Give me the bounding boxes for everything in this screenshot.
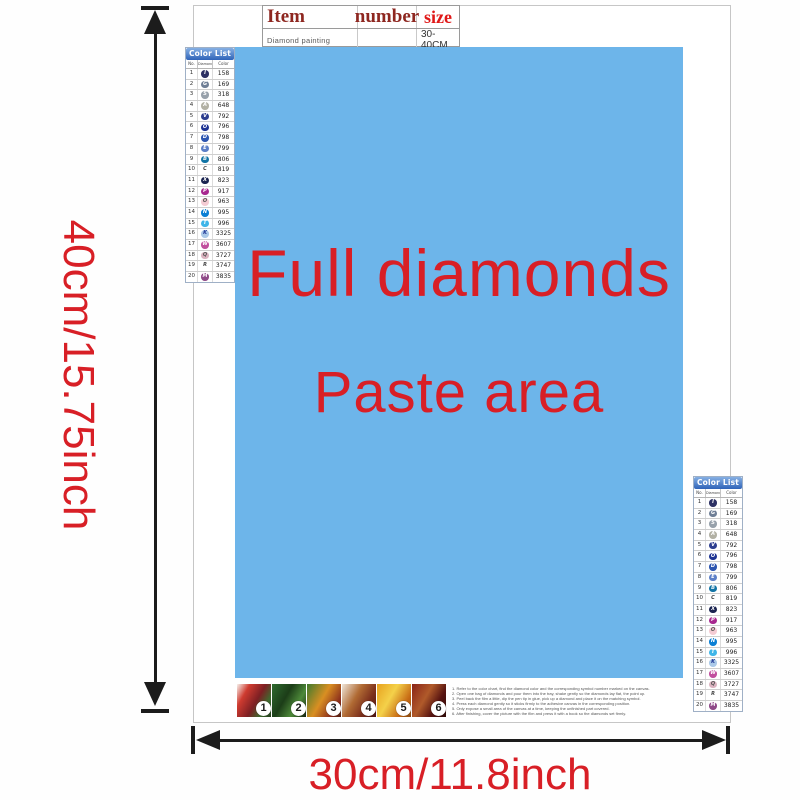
- dmc-color-code: 648: [213, 101, 234, 111]
- row-number: 8: [694, 573, 706, 583]
- diamond-symbol-icon: P: [198, 187, 213, 197]
- diamond-symbol-icon: R: [198, 261, 213, 271]
- color-list-row: 10 C 819: [694, 594, 742, 605]
- diamond-symbol-icon: K: [198, 229, 213, 239]
- row-number: 14: [186, 208, 198, 218]
- row-number: 13: [694, 626, 706, 636]
- color-list-right: Color List No. Diamond Color 1 I 158 2 G…: [693, 476, 743, 712]
- row-number: 16: [186, 229, 198, 239]
- diamond-symbol-icon: T: [198, 219, 213, 229]
- row-number: 3: [694, 519, 706, 529]
- dmc-color-code: 648: [721, 530, 742, 540]
- diamond-symbol-icon: C: [706, 594, 721, 604]
- color-list-row: 2 G 169: [186, 80, 234, 91]
- arrow-right-cap: [726, 726, 730, 754]
- color-list-columns: No. Diamond Color: [694, 489, 742, 498]
- dmc-color-code: 996: [213, 219, 234, 229]
- row-number: 11: [694, 605, 706, 615]
- diamond-symbol-icon: N: [198, 208, 213, 218]
- color-list-left: Color List No. Diamond Color 1 I 158 2 G…: [185, 47, 235, 283]
- row-number: 2: [186, 80, 198, 90]
- row-number: 15: [186, 219, 198, 229]
- dmc-color-code: 819: [721, 594, 742, 604]
- dmc-color-code: 318: [721, 519, 742, 529]
- color-list-row: 3 S 318: [694, 519, 742, 530]
- dmc-color-code: 796: [213, 122, 234, 132]
- dmc-color-code: 995: [721, 637, 742, 647]
- col-no: No.: [694, 489, 706, 497]
- step-number-badge: 4: [361, 701, 376, 716]
- color-list-row: 5 V 792: [694, 541, 742, 552]
- dmc-color-code: 917: [213, 187, 234, 197]
- dmc-color-code: 799: [721, 573, 742, 583]
- color-list-row: 18 Q 3727: [186, 251, 234, 262]
- dmc-color-code: 796: [721, 551, 742, 561]
- diamond-symbol-icon: G: [706, 509, 721, 519]
- step-number-badge: 6: [431, 701, 446, 716]
- col-no: No.: [186, 60, 198, 68]
- paste-area-subtitle: Paste area: [235, 359, 683, 426]
- dmc-color-code: 158: [213, 69, 234, 79]
- dmc-color-code: 799: [213, 144, 234, 154]
- diamond-symbol-icon: B: [198, 155, 213, 165]
- row-number: 11: [186, 176, 198, 186]
- diamond-symbol-icon: R: [706, 690, 721, 700]
- arrow-down-icon: [144, 682, 166, 706]
- color-list-row: 5 V 792: [186, 112, 234, 123]
- diamond-symbol-icon: W: [198, 240, 213, 250]
- dmc-color-code: 798: [721, 562, 742, 572]
- col-diamond: Diamond: [706, 489, 721, 497]
- row-number: 2: [694, 509, 706, 519]
- color-list-row: 4 A 648: [694, 530, 742, 541]
- color-list-row: 19 R 3747: [186, 261, 234, 272]
- row-number: 20: [186, 272, 198, 282]
- dmc-color-code: 819: [213, 165, 234, 175]
- color-list-row: 8 E 799: [186, 144, 234, 155]
- diamond-symbol-icon: P: [706, 616, 721, 626]
- dmc-color-code: 823: [213, 176, 234, 186]
- color-list-row: 16 K 3325: [186, 229, 234, 240]
- diamond-symbol-icon: W: [706, 669, 721, 679]
- color-list-row: 6 O 796: [694, 551, 742, 562]
- color-list-row: 11 X 823: [694, 605, 742, 616]
- paste-area-title: Full diamonds: [235, 235, 683, 311]
- row-number: 13: [186, 197, 198, 207]
- row-number: 14: [694, 637, 706, 647]
- row-number: 1: [186, 69, 198, 79]
- arrow-left-cap: [191, 726, 195, 754]
- color-list-title: Color List: [186, 48, 234, 60]
- diamond-symbol-icon: I: [198, 69, 213, 79]
- color-list-row: 14 N 995: [694, 637, 742, 648]
- diamond-symbol-icon: C: [198, 165, 213, 175]
- dmc-color-code: 3325: [721, 658, 742, 668]
- dmc-color-code: 996: [721, 648, 742, 658]
- diamond-symbol-icon: Q: [198, 251, 213, 261]
- diamond-symbol-icon: V: [706, 541, 721, 551]
- color-list-row: 17 W 3607: [186, 240, 234, 251]
- color-list-row: 9 B 806: [694, 584, 742, 595]
- color-list-row: 13 O 963: [186, 197, 234, 208]
- dmc-color-code: 158: [721, 498, 742, 508]
- diamond-symbol-icon: S: [198, 90, 213, 100]
- instruction-line: 6. After finishing, cover the picture wi…: [452, 711, 704, 716]
- color-list-row: 17 W 3607: [694, 669, 742, 680]
- dmc-color-code: 318: [213, 90, 234, 100]
- arrow-bottom-cap: [141, 709, 169, 713]
- instructions-block: 1. Refer to the color chart, find the di…: [452, 686, 704, 717]
- diamond-symbol-icon: D: [706, 562, 721, 572]
- paste-area: Full diamonds Paste area: [235, 47, 683, 678]
- diamond-symbol-icon: O: [706, 626, 721, 636]
- row-number: 5: [186, 112, 198, 122]
- diamond-symbol-icon: X: [706, 605, 721, 615]
- diamond-symbol-icon: A: [198, 101, 213, 111]
- row-number: 7: [186, 133, 198, 143]
- dmc-color-code: 3747: [213, 261, 234, 271]
- dmc-color-code: 3727: [721, 680, 742, 690]
- step-number-badge: 3: [326, 701, 341, 716]
- step-thumbnail: 2: [272, 684, 306, 717]
- step-thumbnail: 5: [377, 684, 411, 717]
- color-list-columns: No. Diamond Color: [186, 60, 234, 69]
- dmc-color-code: 169: [213, 80, 234, 90]
- dmc-color-code: 963: [721, 626, 742, 636]
- number-header: number: [355, 6, 419, 28]
- size-header: size: [424, 7, 452, 28]
- step-thumbnail: 1: [237, 684, 271, 717]
- row-number: 18: [186, 251, 198, 261]
- diamond-symbol-icon: N: [706, 637, 721, 647]
- row-number: 12: [186, 187, 198, 197]
- dmc-color-code: 3727: [213, 251, 234, 261]
- diamond-symbol-icon: Q: [706, 680, 721, 690]
- step-thumbnail: 3: [307, 684, 341, 717]
- diamond-symbol-icon: K: [706, 658, 721, 668]
- diamond-symbol-icon: B: [706, 584, 721, 594]
- color-list-title: Color List: [694, 477, 742, 489]
- row-number: 10: [694, 594, 706, 604]
- row-number: 12: [694, 616, 706, 626]
- diamond-symbol-icon: M: [198, 272, 213, 282]
- height-label: 40cm/15.75inch: [53, 220, 103, 531]
- diamond-symbol-icon: V: [198, 112, 213, 122]
- color-list-row: 1 I 158: [186, 69, 234, 80]
- diamond-symbol-icon: D: [198, 133, 213, 143]
- diamond-symbol-icon: O: [198, 197, 213, 207]
- dmc-color-code: 3747: [721, 690, 742, 700]
- color-list-row: 12 P 917: [186, 187, 234, 198]
- color-list-row: 4 A 648: [186, 101, 234, 112]
- row-number: 1: [694, 498, 706, 508]
- row-number: 3: [186, 90, 198, 100]
- row-number: 19: [186, 261, 198, 271]
- diamond-symbol-icon: X: [198, 176, 213, 186]
- row-number: 4: [694, 530, 706, 540]
- step-thumbnail: 6: [412, 684, 446, 717]
- diamond-symbol-icon: E: [706, 573, 721, 583]
- row-number: 15: [694, 648, 706, 658]
- col-diamond: Diamond: [198, 60, 213, 68]
- color-list-row: 9 B 806: [186, 155, 234, 166]
- row-number: 17: [694, 669, 706, 679]
- row-number: 9: [186, 155, 198, 165]
- dmc-color-code: 3325: [213, 229, 234, 239]
- color-list-row: 10 C 819: [186, 165, 234, 176]
- diamond-symbol-icon: I: [706, 498, 721, 508]
- color-list-row: 8 E 799: [694, 573, 742, 584]
- diamond-symbol-icon: M: [706, 701, 721, 711]
- diamond-symbol-icon: O: [706, 551, 721, 561]
- dmc-color-code: 963: [213, 197, 234, 207]
- row-number: 17: [186, 240, 198, 250]
- dmc-color-code: 823: [721, 605, 742, 615]
- row-number: 16: [694, 658, 706, 668]
- dmc-color-code: 3607: [213, 240, 234, 250]
- step-number-badge: 2: [291, 701, 306, 716]
- col-color: Color: [721, 489, 742, 497]
- step-thumbnail: 4: [342, 684, 376, 717]
- color-list-row: 2 G 169: [694, 509, 742, 520]
- dmc-color-code: 792: [213, 112, 234, 122]
- diamond-symbol-icon: E: [198, 144, 213, 154]
- color-list-row: 20 M 3835: [186, 272, 234, 282]
- color-list-row: 15 T 996: [694, 648, 742, 659]
- arrow-horizontal-line: [210, 739, 716, 742]
- diamond-symbol-icon: O: [198, 122, 213, 132]
- color-list-row: 13 O 963: [694, 626, 742, 637]
- color-list-row: 15 T 996: [186, 219, 234, 230]
- dmc-color-code: 995: [213, 208, 234, 218]
- item-header: Item: [267, 6, 305, 28]
- item-value: Diamond painting: [267, 36, 330, 45]
- dmc-color-code: 798: [213, 133, 234, 143]
- dmc-color-code: 3607: [721, 669, 742, 679]
- color-list-row: 3 S 318: [186, 90, 234, 101]
- dmc-color-code: 3835: [721, 701, 742, 711]
- diamond-symbol-icon: S: [706, 519, 721, 529]
- product-image: Item number size Diamond painting 30-40C…: [0, 0, 800, 800]
- width-label: 30cm/11.8inch: [309, 750, 592, 800]
- diamond-symbol-icon: A: [706, 530, 721, 540]
- row-number: 9: [694, 584, 706, 594]
- dmc-color-code: 806: [721, 584, 742, 594]
- color-list-row: 16 K 3325: [694, 658, 742, 669]
- dmc-color-code: 169: [721, 509, 742, 519]
- row-number: 7: [694, 562, 706, 572]
- arrow-vertical-line: [154, 20, 157, 688]
- color-list-row: 1 I 158: [694, 498, 742, 509]
- col-color: Color: [213, 60, 234, 68]
- color-list-row: 12 P 917: [694, 616, 742, 627]
- step-number-badge: 5: [396, 701, 411, 716]
- item-table-header-row: Item number size: [263, 6, 459, 29]
- item-size-table: Item number size Diamond painting 30-40C…: [262, 5, 460, 47]
- diamond-symbol-icon: G: [198, 80, 213, 90]
- row-number: 10: [186, 165, 198, 175]
- dmc-color-code: 3835: [213, 272, 234, 282]
- color-list-row: 6 O 796: [186, 122, 234, 133]
- row-number: 8: [186, 144, 198, 154]
- color-list-row: 14 N 995: [186, 208, 234, 219]
- dmc-color-code: 806: [213, 155, 234, 165]
- row-number: 4: [186, 101, 198, 111]
- row-number: 6: [694, 551, 706, 561]
- dmc-color-code: 917: [721, 616, 742, 626]
- color-list-row: 11 X 823: [186, 176, 234, 187]
- arrow-right-icon: [702, 730, 726, 750]
- step-thumbnails: 1 2 3 4 5 6: [237, 684, 446, 717]
- color-list-row: 7 D 798: [186, 133, 234, 144]
- color-list-row: 7 D 798: [694, 562, 742, 573]
- diamond-symbol-icon: T: [706, 648, 721, 658]
- row-number: 5: [694, 541, 706, 551]
- step-number-badge: 1: [256, 701, 271, 716]
- dmc-color-code: 792: [721, 541, 742, 551]
- row-number: 6: [186, 122, 198, 132]
